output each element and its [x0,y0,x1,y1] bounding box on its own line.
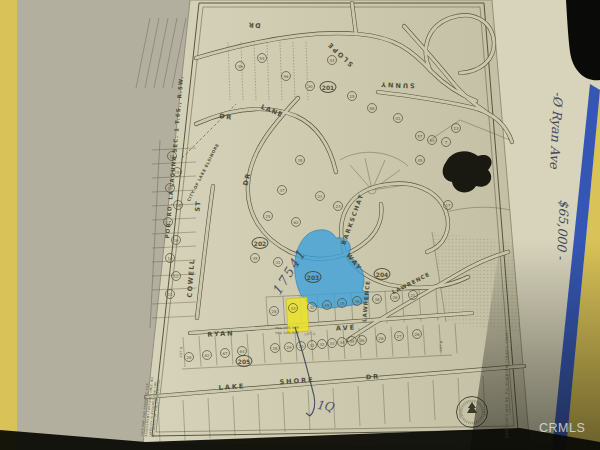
lot-number: 86 [367,103,377,113]
lot-number: 57 [415,131,425,141]
lot-number: 33 [327,338,337,348]
lot-g-label: LOT G [304,332,315,336]
lot-number: 62 [202,350,212,360]
lot-number: 16 [171,235,181,245]
street-label-ryan: RYAN [207,329,235,338]
block-number: 204 [374,268,391,280]
lot-number: 22 [163,217,173,227]
lot-number: 64 [427,135,437,145]
lot-number: 23 [451,123,461,133]
block-number: 201 [320,81,337,93]
lot-number: 31 [307,340,317,350]
lot-number: 26 [184,352,194,362]
lot-number: 33 [288,303,298,313]
street-label-st: ST [194,200,203,212]
lot-number: 32 [317,339,327,349]
lot-number: 38 [372,294,382,304]
street-label-ave: AVE [336,323,356,332]
lot-number: 12 [171,271,181,281]
lot-number: 31 [273,257,283,267]
lot-number: 25 [347,91,357,101]
block-number: 202 [252,237,269,249]
block-number: 203 [305,271,322,283]
handwritten-lot-note: 1Q [315,398,334,414]
lot-number: 96 [281,71,291,81]
crmls-watermark: CRMLS [539,421,585,435]
lot-number: 21 [408,290,418,300]
lot-number: 19 [165,183,175,193]
lot-number: 14 [173,200,183,210]
lot-number: 18 [167,151,177,161]
lot-number: 34 [337,337,347,347]
lot-number: 17 [443,200,453,210]
lot-number: 36 [357,335,367,345]
lot-number: 45 [415,155,425,165]
lot-number: 37 [277,185,287,195]
lot-number: 21 [315,191,325,201]
street-label-dr-left: DR [219,112,233,122]
lot-number: 10 [165,253,175,263]
street-label-dr-top: DR [247,20,261,29]
lot-number: 41 [393,113,403,123]
lot-number: 65 [322,300,332,310]
lot-number: 38 [235,61,245,71]
lot-number: 27 [394,331,404,341]
street-label-sunny: SUNNY [379,80,415,89]
block-number: 205 [236,355,253,367]
lot-number: 54 [257,53,267,63]
lot-number: 25 [263,211,273,221]
lot-number: 28 [269,306,279,316]
yellow-folder-edge-left [0,0,17,450]
lot-number: 7 [441,137,451,147]
lot-number: 64 [237,346,247,356]
lot-number: 44 [327,55,337,65]
lot-number: 30 [305,81,315,91]
lot-number: 26 [376,333,386,343]
assessor-map-note: ASSESSOR'S MAP BK. PG. RIVERSIDE COUNTY,… [505,331,509,438]
lot-number: 35 [295,155,305,165]
lot-number: 29 [284,342,294,352]
lot-number: 30 [296,341,306,351]
lot-number: 26 [412,329,422,339]
lot-number: 15 [172,167,182,177]
lot-number: 62 [291,217,301,227]
lot-number: 11 [165,289,175,299]
lot-number: 35 [250,253,260,263]
lot-number: 35 [337,298,347,308]
street-label-dr-lakeshore: DR [366,373,381,382]
lot-number: 67 [220,348,230,358]
lot-number: 23 [333,201,343,211]
lot-number: 36 [352,296,362,306]
photo-of-plat-map: POR. RO. LA LAGUNA SEC. 1 T.6S., R.5W. C… [0,0,600,450]
lot-number: 32 [307,302,317,312]
lot-number: 28 [270,343,280,353]
tra-number-2: TRA 005-039 [275,331,299,336]
lot-number: 26 [390,292,400,302]
handwritten-margin-price: $65,000 - [554,199,572,260]
lot-number: 35 [347,336,357,346]
